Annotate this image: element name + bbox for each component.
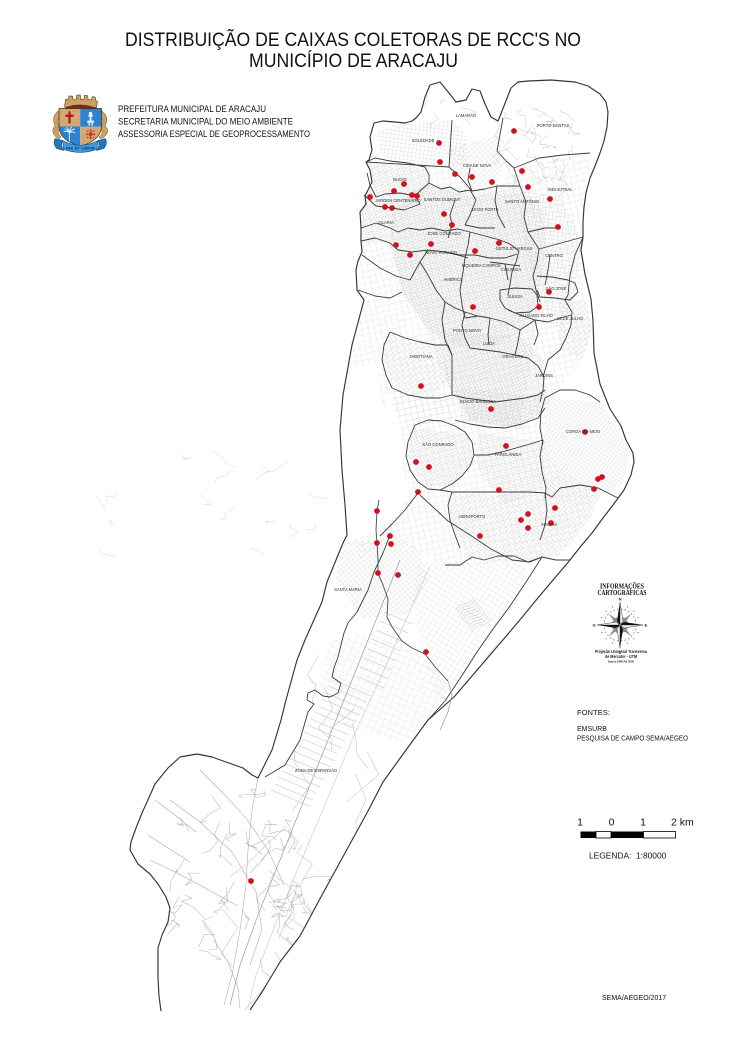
svg-text:EMSURB: EMSURB <box>577 726 607 733</box>
svg-text:DISTRIBUIÇÃO DE CAIXAS COLETOR: DISTRIBUIÇÃO DE CAIXAS COLETORAS DE RCC'… <box>125 29 581 51</box>
svg-text:Datum SIRGAS 2000: Datum SIRGAS 2000 <box>608 660 634 664</box>
svg-text:SÃO JOSÉ: SÃO JOSÉ <box>546 286 567 291</box>
svg-text:1: 1 <box>640 817 646 829</box>
svg-text:1: 1 <box>577 817 583 829</box>
svg-text:SIQUEIRA CAMPOS: SIQUEIRA CAMPOS <box>461 263 500 268</box>
svg-text:MUNICÍPIO DE ARACAJU: MUNICÍPIO DE ARACAJU <box>249 51 458 72</box>
svg-text:JOSÉ CONRADO: JOSÉ CONRADO <box>427 231 461 236</box>
svg-text:JABOTIANA: JABOTIANA <box>409 354 432 359</box>
svg-text:SANTOS DUMONT: SANTOS DUMONT <box>424 197 461 202</box>
svg-text:2 km: 2 km <box>671 817 694 829</box>
svg-text:COROA DO MEIO: COROA DO MEIO <box>566 429 601 434</box>
svg-text:SUISSA: SUISSA <box>507 294 523 299</box>
svg-text:JARDINS: JARDINS <box>535 373 553 378</box>
svg-text:GRAGERU: GRAGERU <box>502 354 523 359</box>
svg-text:N: N <box>619 597 622 602</box>
svg-text:GETÚLIO VARGAS: GETÚLIO VARGAS <box>496 246 533 251</box>
svg-text:ASSESSORIA ESPECIAL DE GEOPROC: ASSESSORIA ESPECIAL DE GEOPROCESSAMENTO <box>118 129 310 140</box>
svg-text:PESQUISA DE CAMPO SEMA/AEGEO: PESQUISA DE CAMPO SEMA/AEGEO <box>577 736 688 743</box>
svg-text:BUGIO: BUGIO <box>393 177 407 182</box>
svg-text:INDUSTRIAL: INDUSTRIAL <box>548 187 574 192</box>
svg-text:ZONA DE EXPANSÃO: ZONA DE EXPANSÃO <box>295 768 338 773</box>
svg-text:INÁCIO BARBOSA: INÁCIO BARBOSA <box>460 399 496 404</box>
svg-text:PAX ET LABOR: PAX ET LABOR <box>66 147 95 151</box>
svg-text:JARDEN CENTENÁRIO: JARDEN CENTENÁRIO <box>375 198 421 203</box>
svg-text:PONTO NOVO: PONTO NOVO <box>453 328 482 333</box>
svg-text:PORTO DANTAS: PORTO DANTAS <box>537 123 570 128</box>
svg-text:ATALAIA: ATALAIA <box>541 522 558 527</box>
svg-text:SALGADO FILHO: SALGADO FILHO <box>519 313 553 318</box>
svg-text:O: O <box>592 623 595 628</box>
svg-text:SANTO ANTÔNIO: SANTO ANTÔNIO <box>505 199 540 204</box>
svg-text:SANTA MARIA: SANTA MARIA <box>334 587 362 592</box>
svg-text:LAMARÃO: LAMARÃO <box>456 113 477 118</box>
svg-text:SÃO CONRADO: SÃO CONRADO <box>422 442 454 447</box>
svg-text:SEMA/AEGEO/2017: SEMA/AEGEO/2017 <box>602 995 666 1002</box>
svg-text:SECRETARIA MUNICIPAL DO MEIO A: SECRETARIA MUNICIPAL DO MEIO AMBIENTE <box>118 117 293 128</box>
svg-text:E: E <box>645 623 648 628</box>
svg-text:0: 0 <box>609 817 615 829</box>
svg-text:de Mercator - UTM: de Mercator - UTM <box>605 654 637 659</box>
svg-text:18 DO FORTE: 18 DO FORTE <box>471 207 499 212</box>
svg-text:PREFEITURA MUNICIPAL DE ARACAJ: PREFEITURA MUNICIPAL DE ARACAJU <box>118 104 266 115</box>
svg-text:OLARIA: OLARIA <box>378 220 394 225</box>
svg-text:CIDADE NOVA: CIDADE NOVA <box>463 163 492 168</box>
svg-text:13 DE JULHO: 13 DE JULHO <box>557 316 584 321</box>
svg-text:CENTRO: CENTRO <box>545 253 563 258</box>
svg-text:LEGENDA: 1:80000: LEGENDA: 1:80000 <box>589 851 667 861</box>
svg-text:AEROPORTO: AEROPORTO <box>459 514 486 519</box>
svg-text:SOLEDADE: SOLEDADE <box>412 138 435 143</box>
svg-text:CIRURGIA: CIRURGIA <box>501 267 522 272</box>
svg-text:LUZIA: LUZIA <box>483 341 495 346</box>
svg-text:FAROLÂNDIA: FAROLÂNDIA <box>495 452 522 457</box>
svg-text:CARTOGRÁFICAS: CARTOGRÁFICAS <box>598 589 647 597</box>
svg-text:NOVO PARAISO: NOVO PARAISO <box>425 250 458 255</box>
svg-text:AMÉRICA: AMÉRICA <box>443 277 462 282</box>
svg-text:FONTES:: FONTES: <box>577 708 610 717</box>
